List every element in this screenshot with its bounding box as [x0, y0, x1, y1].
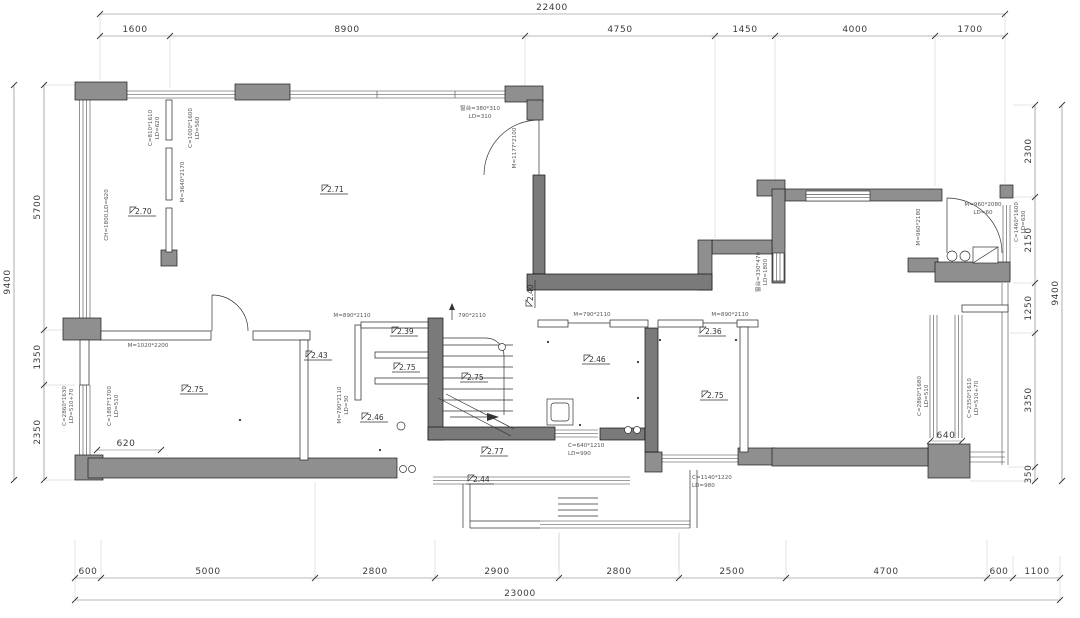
dim-right-overall: 9400 — [1051, 280, 1061, 305]
dim-label: 1250 — [1024, 295, 1034, 320]
svg-text:2.77: 2.77 — [487, 447, 504, 456]
stairs — [438, 303, 514, 436]
stair-up-arrow — [449, 303, 455, 310]
dim-left: 9400 5700 1350 2350 — [3, 82, 47, 483]
opening-label: C=2860*1680 — [917, 376, 923, 416]
svg-text:2.39: 2.39 — [397, 327, 414, 336]
dim-label: 350 — [1024, 465, 1034, 484]
opening-label: M=790*2110 — [573, 312, 611, 318]
dim-top-overall: 22400 — [536, 3, 568, 13]
opening-label: C=2860*1630 — [62, 386, 68, 426]
dim-top: 22400 1600 8900 4750 1450 4000 1700 — [97, 3, 1008, 39]
porch — [463, 470, 697, 528]
dim-label-640: 640 — [937, 431, 956, 441]
level-mark: 2.70 — [128, 207, 156, 216]
opening-label: M=1020*2200 — [128, 343, 169, 349]
opening-label: C=1460*1600 — [1014, 202, 1020, 242]
svg-text:2.43: 2.43 — [311, 351, 328, 360]
basin-icon — [960, 251, 970, 261]
opening-label: M=3640*2170 — [180, 161, 186, 202]
level-mark: 2.75 — [700, 391, 728, 400]
dim-label: 5700 — [33, 194, 43, 219]
svg-text:2.44: 2.44 — [473, 475, 490, 484]
dim-label: 2300 — [1024, 138, 1034, 163]
svg-text:2.75: 2.75 — [707, 391, 724, 400]
opening-label: C=640*1210 — [568, 443, 605, 449]
svg-text:2.70: 2.70 — [135, 207, 152, 216]
dim-label: 2350 — [33, 419, 43, 444]
svg-text:2.40: 2.40 — [526, 284, 535, 301]
floor-plan-page: 22400 1600 8900 4750 1450 4000 1700 600 … — [0, 0, 1080, 618]
dim-label: 2800 — [362, 567, 387, 577]
level-mark: 2.46 — [582, 355, 610, 364]
opening-label: LD=1800 — [763, 258, 769, 285]
level-mark: 2.46 — [360, 413, 388, 422]
opening-label: M=1177*2100 — [512, 127, 518, 168]
dim-label: 8900 — [334, 25, 359, 35]
dim-label: 1450 — [732, 25, 757, 35]
opening-label: LD=310 — [469, 114, 492, 120]
level-mark: 2.44 — [466, 475, 494, 484]
opening-label: C=2350*1610 — [967, 378, 973, 418]
level-mark: 2.77 — [480, 447, 508, 456]
dim-bottom-overall: 23000 — [504, 589, 536, 599]
svg-text:2.71: 2.71 — [327, 185, 344, 194]
basin-icon — [947, 251, 957, 261]
dim-right: 2300 2150 1250 3350 350 9400 — [1024, 102, 1065, 484]
dim-label: 1350 — [33, 344, 43, 369]
dim-bottom: 600 5000 2800 2900 2800 2500 4700 600 11… — [72, 567, 1063, 603]
opening-label: LD=560 — [195, 116, 201, 139]
dim-label: 5000 — [195, 567, 220, 577]
opening-label: C=1000*1600 — [188, 108, 194, 148]
opening-label: LD=620 — [155, 116, 161, 139]
svg-text:2.75: 2.75 — [187, 385, 204, 394]
level-mark: 2.75 — [180, 385, 208, 394]
svg-text:2.46: 2.46 — [589, 355, 606, 364]
opening-label: C=810*1610 — [148, 109, 154, 146]
opening-label: M=960*2180 — [916, 208, 922, 246]
opening-label: 窗台=380*310 — [460, 104, 500, 112]
opening-label: M=890*2110 — [333, 313, 371, 319]
opening-label: M=790*2110 — [337, 386, 343, 424]
floor-plan-canvas: 22400 1600 8900 4750 1450 4000 1700 600 … — [0, 0, 1080, 618]
dim-label: 1600 — [122, 25, 147, 35]
dim-label: 4750 — [607, 25, 632, 35]
dim-label: 4000 — [842, 25, 867, 35]
dim-label: 600 — [990, 567, 1009, 577]
opening-label: LD=510 — [114, 394, 120, 417]
svg-text:2.75: 2.75 — [467, 373, 484, 382]
level-mark: 2.75 — [392, 363, 420, 372]
opening-label: C=1140*1220 — [692, 475, 732, 481]
opening-label: CH=1800,LD=620 — [104, 189, 110, 241]
extension-lines — [44, 14, 1060, 600]
level-mark: 2.71 — [320, 185, 348, 194]
opening-label: LD=510+70 — [974, 380, 980, 415]
opening-label: LD=980 — [692, 483, 715, 489]
dim-label: 3350 — [1024, 387, 1034, 412]
opening-label: 790*2110 — [458, 313, 486, 319]
opening-label: LD=510 — [924, 384, 930, 407]
opening-label: LD=510+70 — [69, 388, 75, 423]
doors — [212, 120, 1002, 331]
dim-label: 600 — [79, 567, 98, 577]
opening-label: LD=630 — [1021, 210, 1027, 233]
dim-label: 2800 — [606, 567, 631, 577]
opening-label: LD=30 — [344, 395, 350, 415]
dim-label: 4700 — [873, 567, 898, 577]
wall-window-insets — [773, 191, 870, 281]
opening-label: C=1887*1700 — [107, 386, 113, 426]
level-mark: 2.75 — [460, 373, 488, 382]
svg-text:2.75: 2.75 — [399, 363, 416, 372]
stair-direction-arrow — [487, 413, 499, 421]
dim-left-overall: 9400 — [3, 269, 13, 294]
opening-label: LD=60 — [973, 210, 993, 216]
dim-label-620: 620 — [117, 439, 136, 449]
dim-label: 2900 — [484, 567, 509, 577]
opening-label: 窗台=330*470 — [754, 252, 762, 292]
opening-label: M=890*2110 — [711, 312, 749, 318]
dim-label: 2500 — [719, 567, 744, 577]
opening-label: LD=990 — [568, 451, 591, 457]
level-mark: 2.36 — [698, 327, 726, 336]
svg-text:2.46: 2.46 — [367, 413, 384, 422]
opening-label: M=960*2080 — [964, 202, 1002, 208]
dim-label: 1700 — [957, 25, 982, 35]
dim-label: 1100 — [1024, 567, 1049, 577]
svg-text:2.36: 2.36 — [705, 327, 722, 336]
level-mark: 2.39 — [390, 327, 418, 336]
